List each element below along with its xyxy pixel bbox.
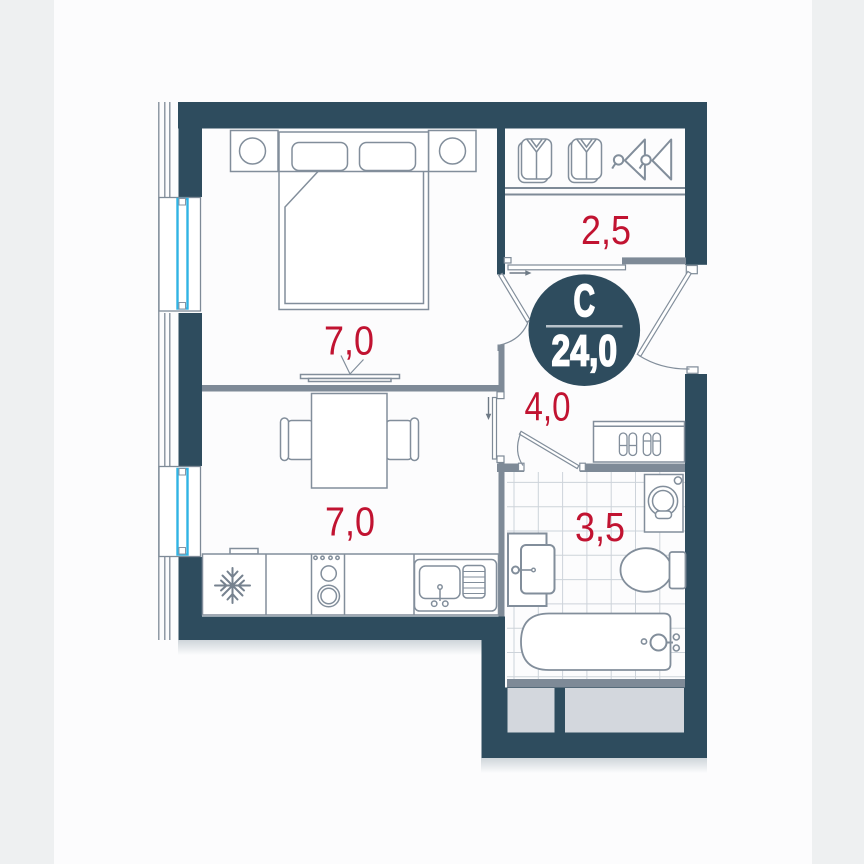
svg-text:С: С <box>574 275 596 326</box>
svg-text:7,0: 7,0 <box>325 499 375 545</box>
svg-text:3,5: 3,5 <box>575 504 625 550</box>
svg-text:24,0: 24,0 <box>552 326 618 375</box>
svg-text:4,0: 4,0 <box>525 384 571 430</box>
svg-text:2,5: 2,5 <box>581 207 631 253</box>
svg-text:7,0: 7,0 <box>324 318 374 364</box>
